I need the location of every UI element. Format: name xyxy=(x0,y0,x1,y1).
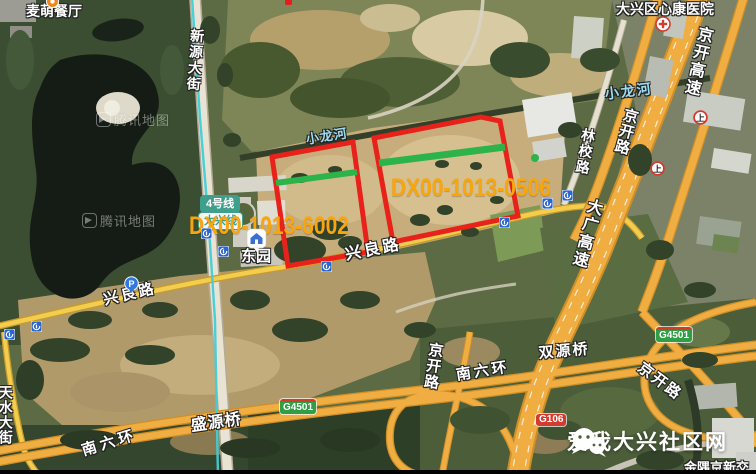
road-label: 京开高速 xyxy=(680,24,713,98)
road-label: 林校路 xyxy=(574,127,597,177)
river-label: 小龙河 xyxy=(305,126,349,146)
wechat-icon xyxy=(567,426,607,460)
road-label: 新源大街 xyxy=(186,28,205,93)
bridge-label: 双源桥 xyxy=(538,342,590,362)
map-provider-watermark-text: 腾讯地图 xyxy=(100,211,156,230)
route-badge: G106 xyxy=(536,414,566,426)
route-badge: G4501 xyxy=(280,399,316,414)
route-badge: G4501 xyxy=(656,327,692,342)
road-label: 南六环 xyxy=(80,427,139,459)
map-provider-watermark: 腾讯地图 xyxy=(96,110,170,129)
red-poi-fragment xyxy=(285,0,292,5)
svg-text:P: P xyxy=(128,279,134,289)
map-provider-watermark-text: 腾讯地图 xyxy=(114,110,170,129)
parcel-id-label: DX00-1013-0506 xyxy=(391,174,551,203)
river-label: 小龙河 xyxy=(604,81,653,101)
road-label: 京开路 xyxy=(612,106,640,156)
svg-text:上: 上 xyxy=(696,113,705,123)
metro-line-bubble[interactable]: 4号线 xyxy=(200,195,240,213)
map-provider-logo xyxy=(96,112,111,127)
community-banner: 爱我大兴社区网 xyxy=(567,426,728,456)
road-label: 南六环 xyxy=(455,360,511,384)
road-label: 兴良路 xyxy=(344,237,403,264)
letterbox-bar xyxy=(0,470,756,474)
satellite-map[interactable]: 新源大街天水大街兴良路兴良路南六环南六环京开高速大广高速京开路京开路京开路林校路… xyxy=(0,0,756,474)
road-label: 大广高速 xyxy=(567,196,602,270)
road-label: 京开路 xyxy=(421,341,443,391)
map-provider-logo xyxy=(82,213,97,228)
road-label: 天水大街 xyxy=(0,385,13,445)
bridge-label: 盛源桥 xyxy=(190,412,243,436)
svg-text:上: 上 xyxy=(653,164,662,174)
poi-label: 大兴区心康医院 xyxy=(616,2,714,17)
map-provider-watermark: 腾讯地图 xyxy=(82,211,156,230)
road-label: 京开路 xyxy=(635,360,685,403)
parcel-id-label: DX00-1013-6002 xyxy=(189,212,349,241)
